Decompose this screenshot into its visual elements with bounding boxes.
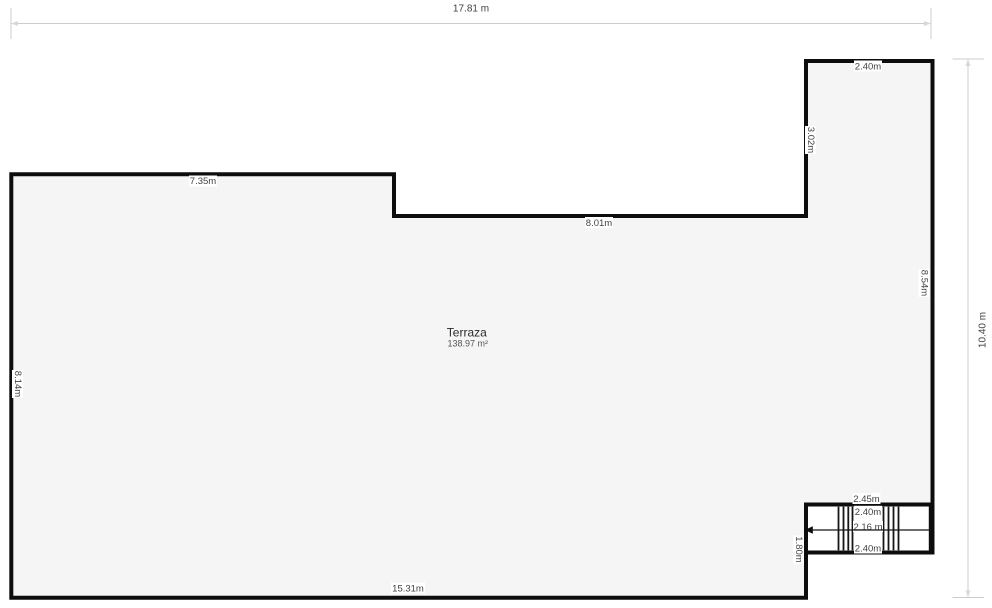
svg-text:2.45m: 2.45m [853,494,879,505]
svg-text:138.97 m²: 138.97 m² [448,339,489,349]
svg-text:8.01m: 8.01m [586,218,612,229]
svg-text:2.40m: 2.40m [855,507,881,518]
svg-text:1.80m: 1.80m [793,536,804,562]
svg-text:17.81 m: 17.81 m [453,4,489,15]
svg-text:10.40 m: 10.40 m [978,312,989,348]
svg-text:2.40m: 2.40m [855,544,881,555]
svg-text:Terraza: Terraza [447,326,487,340]
svg-text:7.35m: 7.35m [190,176,216,187]
svg-text:2.40m: 2.40m [855,62,881,73]
svg-text:2.16 m: 2.16 m [853,522,882,533]
svg-text:8.14m: 8.14m [12,371,23,397]
svg-text:15.31m: 15.31m [392,584,424,595]
svg-text:8.54m: 8.54m [919,270,930,296]
svg-text:3.02m: 3.02m [805,127,816,153]
